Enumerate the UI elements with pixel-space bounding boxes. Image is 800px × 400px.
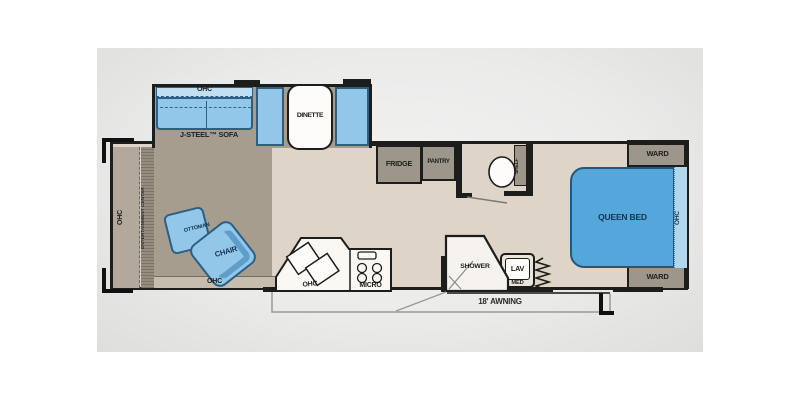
sofa-label: J-STEEL™ SOFA bbox=[153, 131, 265, 139]
entry-steps-icon bbox=[536, 258, 549, 289]
bed-ohc-label: OHC bbox=[675, 200, 686, 236]
lav-label: LAV bbox=[505, 265, 530, 272]
shower-label: SHOWER bbox=[448, 264, 502, 271]
floorplan-image: OHC J-STEEL™ SOFA DINETTE FRIDGE PANTRY … bbox=[0, 0, 800, 400]
dinette-label: DINETTE bbox=[287, 113, 333, 120]
queen-bed-label: QUEEN BED bbox=[570, 213, 675, 222]
front-ohc-label: OHC bbox=[117, 195, 135, 241]
ward-top-label: WARD bbox=[627, 150, 688, 158]
pantry-label: PANTRY bbox=[421, 159, 456, 165]
med-label: MED bbox=[503, 281, 532, 287]
shelf-label: SHELF bbox=[515, 148, 527, 184]
sofa-ohc-label: OHC bbox=[156, 86, 253, 93]
bath-door-swing bbox=[467, 197, 507, 203]
micro-label: MICRO bbox=[350, 282, 391, 289]
fridge-label: FRIDGE bbox=[376, 160, 422, 167]
living-ohc-label: OHC bbox=[154, 278, 275, 285]
toilet-icon bbox=[489, 157, 515, 187]
ward-bottom-label: WARD bbox=[627, 273, 688, 281]
awning-label: 18' AWNING bbox=[440, 298, 560, 306]
entertainment-center-label: ENTERTAINMENT CENTER bbox=[142, 160, 153, 276]
